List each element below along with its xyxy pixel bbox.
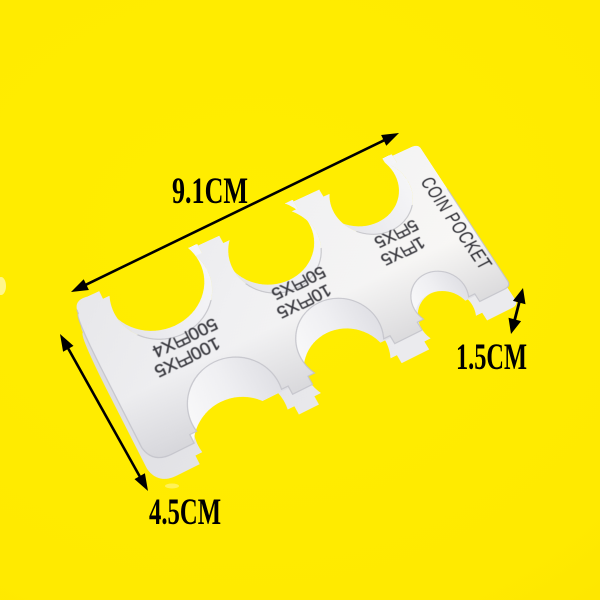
svg-text:1.5CM: 1.5CM	[456, 337, 527, 378]
svg-text:4.5CM: 4.5CM	[149, 492, 221, 533]
svg-text:9.1CM: 9.1CM	[172, 171, 248, 212]
